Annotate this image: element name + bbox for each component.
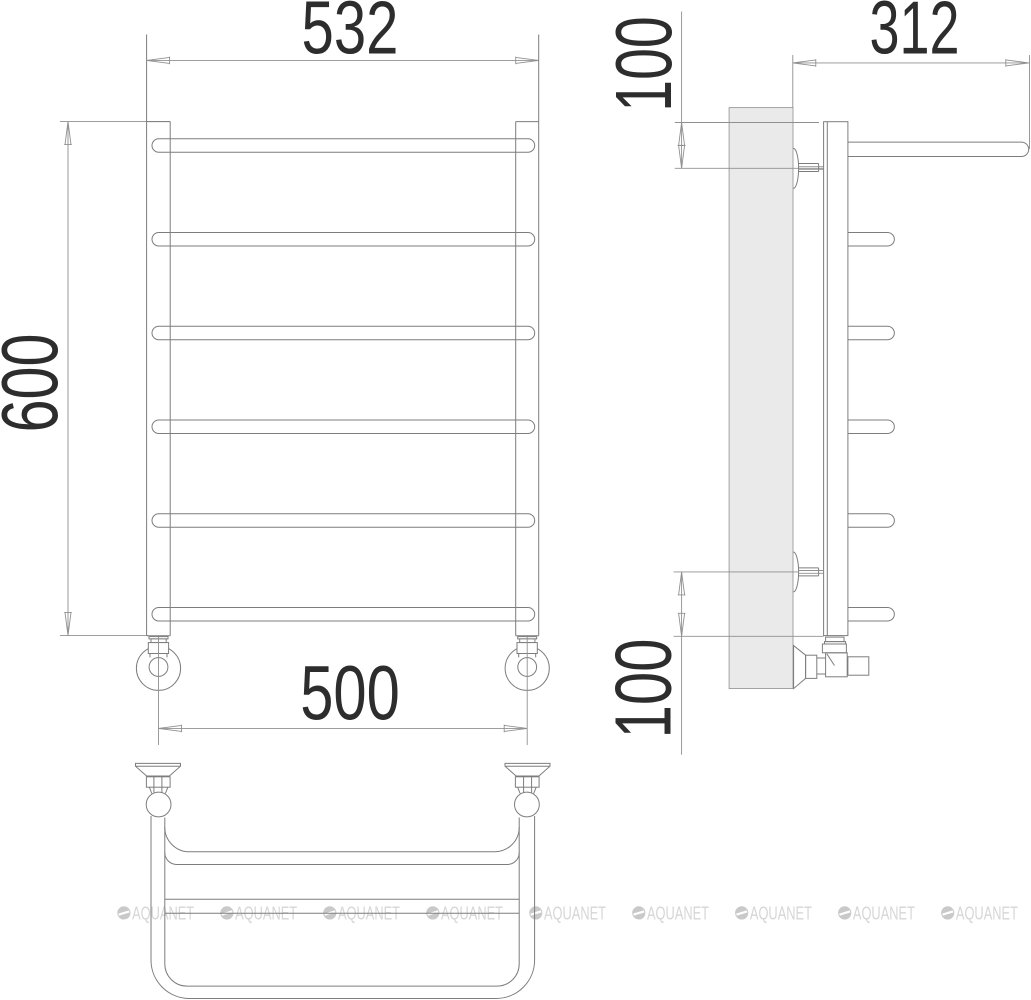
svg-text:100: 100 (598, 638, 687, 738)
svg-text:532: 532 (302, 0, 399, 70)
svg-text:312: 312 (869, 0, 959, 70)
svg-text:600: 600 (0, 334, 74, 433)
svg-text:100: 100 (598, 16, 688, 111)
svg-text:500: 500 (300, 650, 400, 736)
